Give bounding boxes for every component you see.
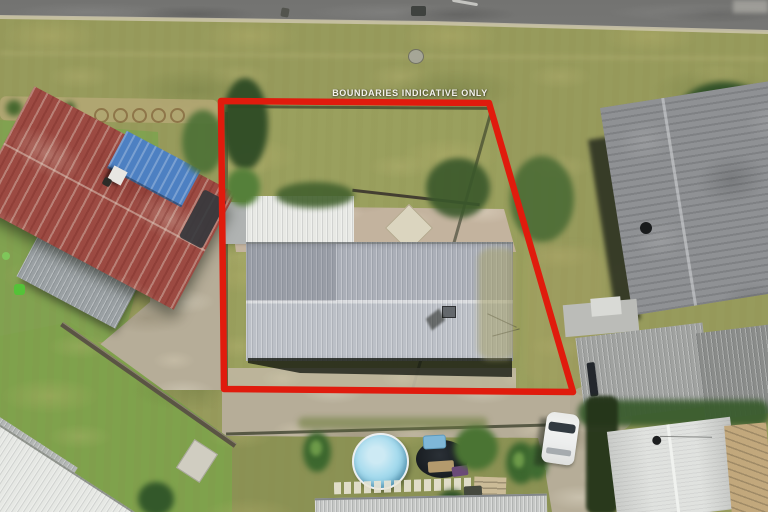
palm-tree-center (513, 452, 525, 468)
manhole-cover (408, 49, 424, 64)
road-object-small (280, 7, 289, 17)
tree-left-of-boundary (182, 110, 224, 174)
bike-wheel (151, 108, 166, 123)
trees-east-boundary (510, 156, 574, 242)
garage-vent (652, 435, 662, 445)
white-hip-garage (607, 417, 741, 512)
outbuilding-white-top (590, 296, 621, 317)
bush-inside-boundary (226, 168, 260, 206)
hedge-inside-boundary (276, 182, 354, 208)
road-culvert (411, 6, 426, 16)
timber-deck (724, 422, 768, 512)
bike-wheels-row (94, 108, 186, 123)
fence-scrub (298, 417, 488, 429)
tree-dark-corner (222, 78, 268, 170)
gravel-drive-south (546, 466, 590, 512)
car-rear-window (546, 447, 572, 456)
spa-board (428, 460, 455, 473)
bike-wheel (113, 108, 128, 123)
palm-tree-center (310, 440, 322, 456)
aerial-property-photo: BOUNDARIES INDICATIVE ONLY (0, 0, 768, 512)
car-windshield (548, 421, 576, 434)
road-light-patch (733, 0, 768, 13)
shed-roof-dark-section (246, 244, 336, 301)
hip-ridge (666, 424, 680, 512)
boundary-disclaimer-text: BOUNDARIES INDICATIVE ONLY (328, 88, 492, 98)
shingle-ridge (661, 98, 697, 306)
weeds-east-of-shed (478, 248, 516, 360)
green-object (2, 252, 10, 260)
parked-car (541, 411, 581, 466)
bike-wheel (170, 108, 185, 123)
fern (138, 482, 174, 512)
roof-window-slot (586, 362, 598, 397)
bike-wheel (132, 108, 147, 123)
shed-vent (442, 306, 456, 318)
green-wheelie-bin (14, 284, 25, 295)
shed-roof (246, 242, 513, 361)
roof-vent-round (640, 222, 652, 234)
paddling-pool (423, 434, 447, 449)
tree-by-yard-fence (426, 158, 490, 218)
garden-bush-large (454, 426, 498, 470)
